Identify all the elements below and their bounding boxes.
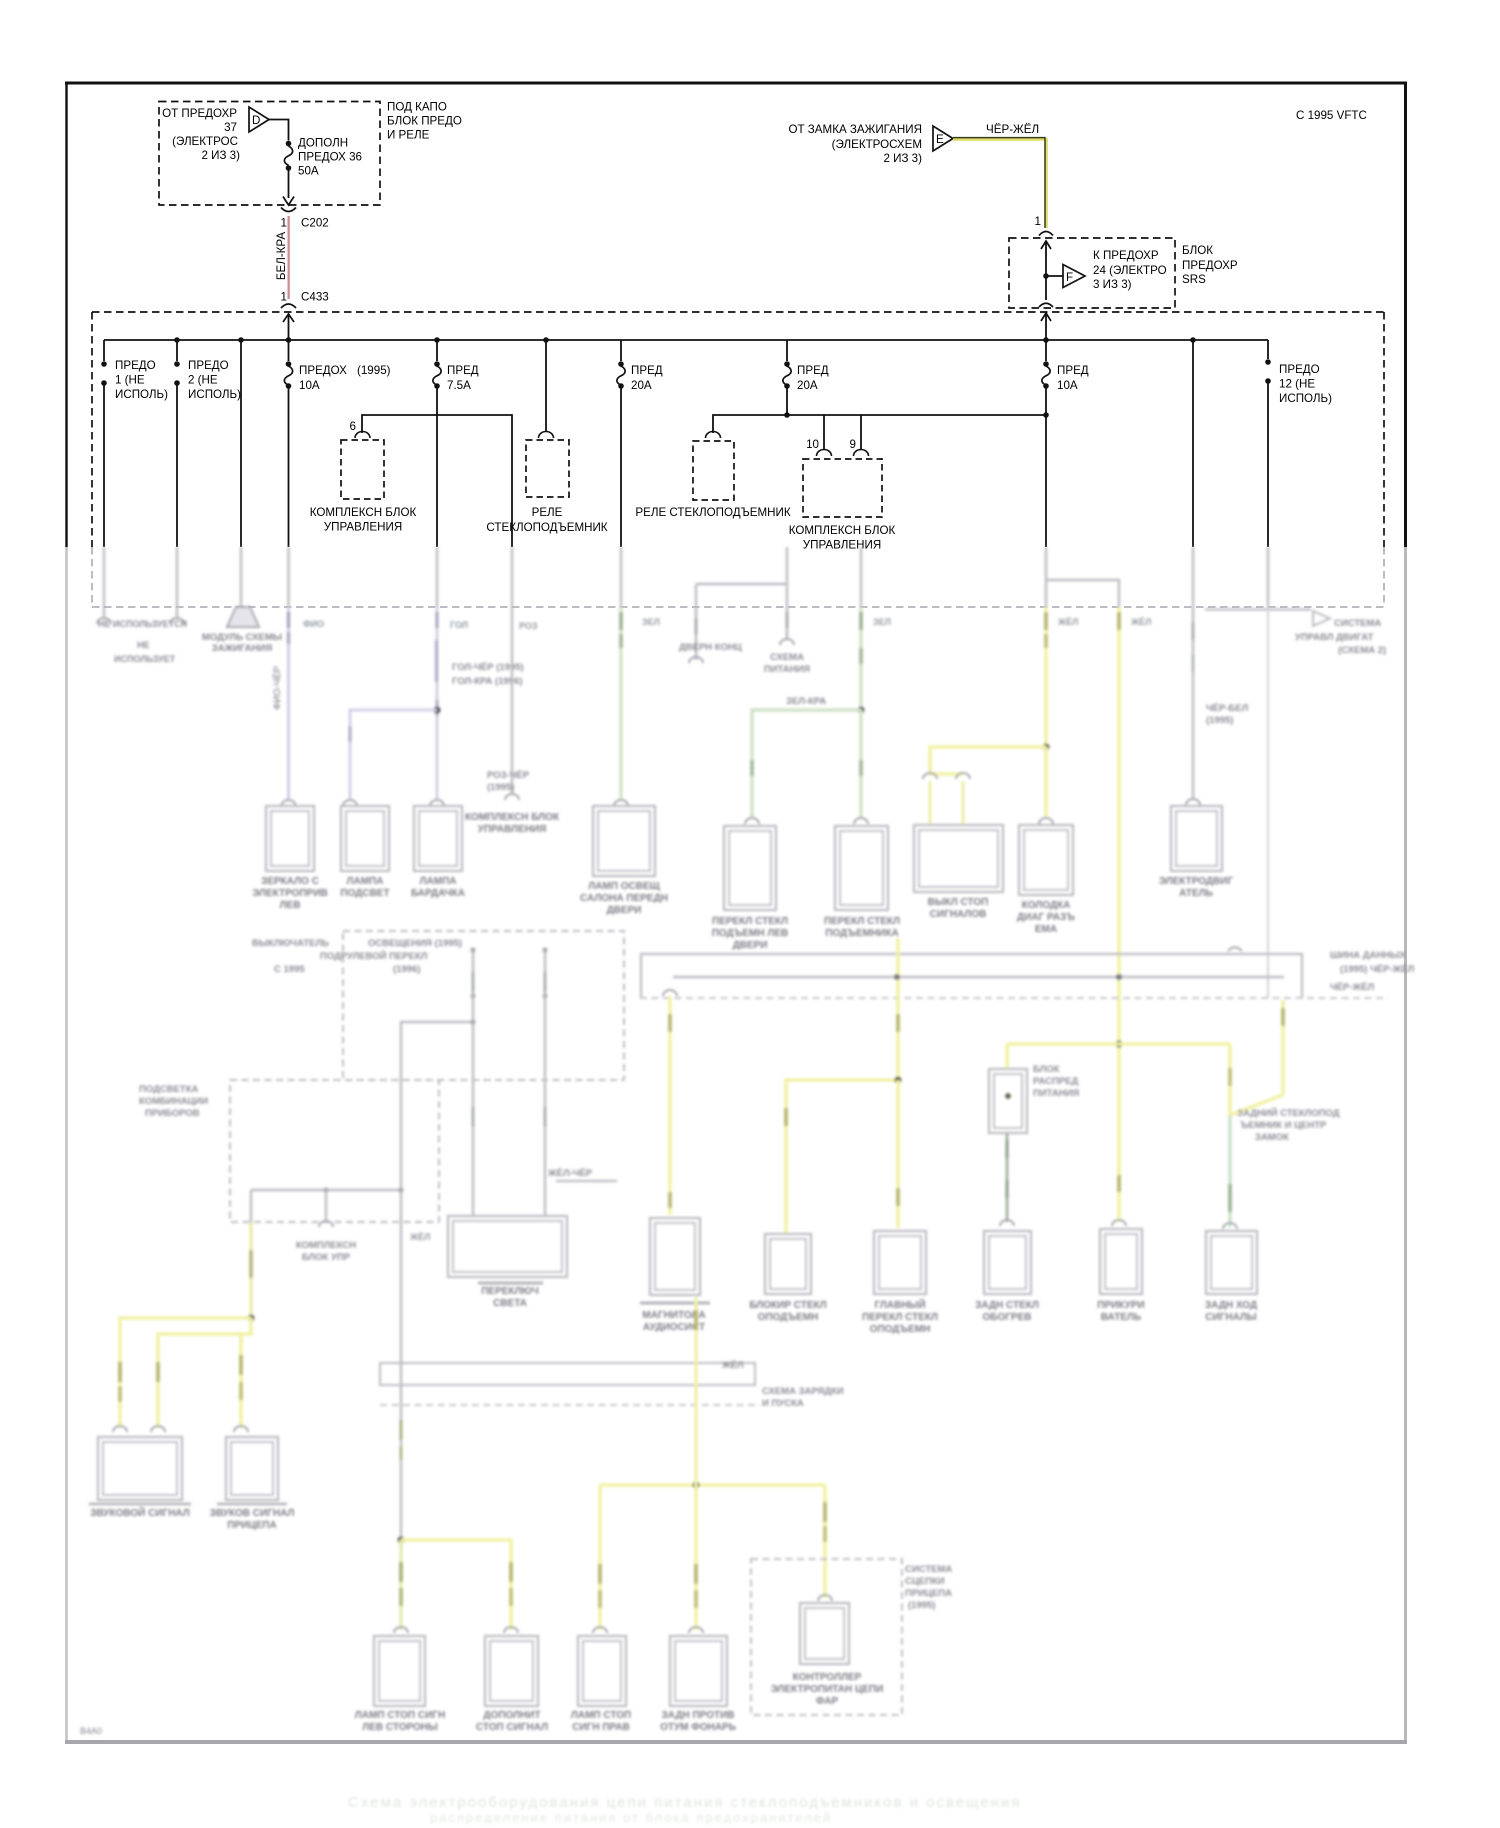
svg-text:3 ИЗ 3): 3 ИЗ 3) xyxy=(1093,278,1132,291)
svg-text:СИСТЕМА: СИСТЕМА xyxy=(1334,618,1381,629)
svg-text:СТОП СИГНАЛ: СТОП СИГНАЛ xyxy=(476,1722,548,1733)
svg-text:СХЕМА: СХЕМА xyxy=(770,652,804,663)
svg-text:УПРАВЛЕНИЯ: УПРАВЛЕНИЯ xyxy=(803,539,881,552)
svg-text:ИСПОЛЬ): ИСПОЛЬ) xyxy=(1279,392,1332,405)
svg-text:1 (НЕ: 1 (НЕ xyxy=(115,374,145,387)
svg-text:КОМПЛЕКСН БЛОК: КОМПЛЕКСН БЛОК xyxy=(310,506,417,519)
svg-text:УПРАВЛ ДВИГАТ: УПРАВЛ ДВИГАТ xyxy=(1295,632,1374,643)
svg-text:ЗЕЛ: ЗЕЛ xyxy=(873,617,891,627)
svg-text:ПРЕДО: ПРЕДО xyxy=(1279,363,1320,376)
svg-text:ОСВЕЩЕНИЯ (1995): ОСВЕЩЕНИЯ (1995) xyxy=(368,938,462,949)
svg-text:12 (НЕ: 12 (НЕ xyxy=(1279,378,1315,391)
svg-text:ЗЕРКАЛО С: ЗЕРКАЛО С xyxy=(261,876,319,887)
svg-text:24 (ЭЛЕКТРО: 24 (ЭЛЕКТРО xyxy=(1093,264,1167,277)
svg-text:10А: 10А xyxy=(299,379,320,392)
svg-text:6: 6 xyxy=(350,420,356,433)
svg-text:СИГНАЛОВ: СИГНАЛОВ xyxy=(930,909,987,920)
svg-text:1: 1 xyxy=(281,217,287,230)
svg-text:ЗВУКОВ СИГНАЛ: ЗВУКОВ СИГНАЛ xyxy=(210,1508,295,1519)
svg-text:E: E xyxy=(936,133,944,146)
svg-text:БЛОКИР СТЕКЛ: БЛОКИР СТЕКЛ xyxy=(749,1300,826,1311)
svg-text:ДВЕРН КОНЦ: ДВЕРН КОНЦ xyxy=(679,642,742,653)
svg-text:1: 1 xyxy=(281,291,287,304)
svg-text:(1995): (1995) xyxy=(1206,715,1233,726)
svg-text:САЛОНА ПЕРЕДН: САЛОНА ПЕРЕДН xyxy=(580,893,668,904)
svg-text:20А: 20А xyxy=(797,379,818,392)
svg-text:МОДУЛЬ СХЕМЫ: МОДУЛЬ СХЕМЫ xyxy=(202,632,282,643)
svg-text:ЗАМОК: ЗАМОК xyxy=(1255,1132,1289,1143)
svg-text:С 1995: С 1995 xyxy=(274,964,305,975)
svg-text:РЕЛЕ СТЕКЛОПОДЪЕМНИК: РЕЛЕ СТЕКЛОПОДЪЕМНИК xyxy=(635,506,790,519)
svg-text:ЗЕЛ-КРА: ЗЕЛ-КРА xyxy=(786,696,826,707)
svg-text:КОМПЛЕКСН БЛОК: КОМПЛЕКСН БЛОК xyxy=(465,812,560,823)
svg-text:ЧЁР-БЕЛ: ЧЁР-БЕЛ xyxy=(1206,703,1249,714)
svg-text:ИСПОЛЬ): ИСПОЛЬ) xyxy=(188,388,241,401)
svg-text:ФАР: ФАР xyxy=(816,1696,839,1707)
svg-text:(1995): (1995) xyxy=(487,782,514,793)
svg-text:50А: 50А xyxy=(298,165,319,178)
svg-text:КОМПЛЕКСН БЛОК: КОМПЛЕКСН БЛОК xyxy=(789,524,896,537)
svg-text:ДИАГ РАЗЪ: ДИАГ РАЗЪ xyxy=(1017,912,1075,923)
svg-text:БЛОК: БЛОК xyxy=(1182,244,1213,257)
svg-text:НЕ: НЕ xyxy=(137,640,150,650)
svg-text:КОМПЛЕКСН: КОМПЛЕКСН xyxy=(296,1240,356,1251)
svg-text:9: 9 xyxy=(850,438,856,451)
svg-text:КОЛОДКА: КОЛОДКА xyxy=(1022,900,1071,911)
svg-text:ЗАДН СТЕКЛ: ЗАДН СТЕКЛ xyxy=(975,1300,1039,1311)
svg-text:ПРЕД: ПРЕД xyxy=(631,364,663,377)
svg-text:КОМБИНАЦИИ: КОМБИНАЦИИ xyxy=(139,1096,208,1107)
svg-text:ВЫКЛ СТОП: ВЫКЛ СТОП xyxy=(928,897,989,908)
svg-text:ПРИКУРИ: ПРИКУРИ xyxy=(1097,1300,1144,1311)
svg-text:ЗАЖИГАНИЯ: ЗАЖИГАНИЯ xyxy=(212,643,273,654)
svg-text:ПЕРЕКЛ СТЕКЛ: ПЕРЕКЛ СТЕКЛ xyxy=(862,1312,938,1323)
svg-text:ГОЛ: ГОЛ xyxy=(450,620,468,630)
svg-text:ДВЕРИ: ДВЕРИ xyxy=(733,940,768,951)
svg-text:ПИТАНИЯ: ПИТАНИЯ xyxy=(1033,1088,1079,1099)
svg-text:2 ИЗ 3): 2 ИЗ 3) xyxy=(883,152,922,165)
svg-text:ПРИЦЕПА: ПРИЦЕПА xyxy=(227,1520,276,1531)
svg-text:ПОД КАПО: ПОД КАПО xyxy=(387,101,447,114)
svg-text:ПРИБОРОВ: ПРИБОРОВ xyxy=(145,1108,200,1119)
svg-text:ЧЁР-ЖЁЛ: ЧЁР-ЖЁЛ xyxy=(986,123,1039,136)
svg-text:распределение питания от блок: распределение питания от блока предохран… xyxy=(430,1810,832,1825)
svg-text:ПОДСВЕТ: ПОДСВЕТ xyxy=(340,888,389,899)
svg-text:РОЗ: РОЗ xyxy=(519,621,538,631)
svg-text:ЖЁЛ: ЖЁЛ xyxy=(721,1360,744,1371)
svg-text:БЛОК: БЛОК xyxy=(1033,1064,1060,1075)
svg-text:C202: C202 xyxy=(301,217,329,230)
svg-text:С 1995 VFTC: С 1995 VFTC xyxy=(1296,109,1367,122)
svg-text:ФИО: ФИО xyxy=(303,619,324,629)
svg-text:(1995): (1995) xyxy=(908,1600,935,1611)
svg-text:ЕМА: ЕМА xyxy=(1035,924,1057,935)
svg-text:ВЫКЛЮЧАТЕЛЬ: ВЫКЛЮЧАТЕЛЬ xyxy=(252,938,329,949)
svg-text:ОБОГРЕВ: ОБОГРЕВ xyxy=(983,1312,1032,1323)
svg-text:ПРЕДОХ 36: ПРЕДОХ 36 xyxy=(298,151,362,164)
svg-text:УПРАВЛЕНИЯ: УПРАВЛЕНИЯ xyxy=(324,521,402,534)
svg-text:И РЕЛЕ: И РЕЛЕ xyxy=(387,129,430,142)
svg-text:ПРЕДО: ПРЕДО xyxy=(188,359,229,372)
svg-text:РЕЛЕ: РЕЛЕ xyxy=(532,506,563,519)
svg-text:К ПРЕДОХР: К ПРЕДОХР xyxy=(1093,249,1159,262)
svg-text:СХЕМА ЗАРЯДКИ: СХЕМА ЗАРЯДКИ xyxy=(762,1386,844,1397)
svg-text:СТЕКЛОПОДЪЕМНИК: СТЕКЛОПОДЪЕМНИК xyxy=(486,521,607,534)
svg-text:ИСПОЛЬ): ИСПОЛЬ) xyxy=(115,388,168,401)
svg-text:ЛЕВ СТОРОНЫ: ЛЕВ СТОРОНЫ xyxy=(362,1722,438,1733)
svg-text:10А: 10А xyxy=(1057,379,1078,392)
svg-text:ДОПОЛН: ДОПОЛН xyxy=(298,137,348,150)
svg-text:(1995): (1995) xyxy=(357,364,391,377)
svg-text:ЗЕЛ: ЗЕЛ xyxy=(642,617,660,627)
svg-text:ЭЛЕКТРОДВИГ: ЭЛЕКТРОДВИГ xyxy=(1159,876,1234,887)
svg-text:ПРЕД: ПРЕД xyxy=(1057,364,1089,377)
svg-text:ПРЕД: ПРЕД xyxy=(447,364,479,377)
svg-text:F: F xyxy=(1066,271,1073,284)
svg-text:ОТ ЗАМКА ЗАЖИГАНИЯ: ОТ ЗАМКА ЗАЖИГАНИЯ xyxy=(788,123,922,136)
svg-text:БЛОК ПРЕДО: БЛОК ПРЕДО xyxy=(387,115,462,128)
svg-text:2 (НЕ: 2 (НЕ xyxy=(188,374,218,387)
svg-text:(ЭЛЕКТРОС: (ЭЛЕКТРОС xyxy=(172,135,238,148)
svg-text:ЗВУКОВОЙ СИГНАЛ: ЗВУКОВОЙ СИГНАЛ xyxy=(90,1506,190,1519)
svg-text:Схема электрооборудования цеп: Схема электрооборудования цепи питания с… xyxy=(348,1794,1021,1811)
svg-text:ПРЕД: ПРЕД xyxy=(797,364,829,377)
svg-text:ЖЁЛ: ЖЁЛ xyxy=(409,1232,430,1242)
svg-text:ДОПОЛНИТ: ДОПОЛНИТ xyxy=(483,1710,540,1721)
svg-text:УПРАВЛЕНИЯ: УПРАВЛЕНИЯ xyxy=(478,824,547,835)
svg-text:(1995) ЧЁР-ЖЁЛ: (1995) ЧЁР-ЖЁЛ xyxy=(1340,964,1415,975)
svg-text:ЛАМПА: ЛАМПА xyxy=(420,876,457,887)
svg-text:ФИО-ЧЁР: ФИО-ЧЁР xyxy=(272,666,283,710)
svg-text:ПРЕДОХ: ПРЕДОХ xyxy=(299,364,347,377)
svg-text:ЭЛЕКТРОПИТАН ЦЕПИ: ЭЛЕКТРОПИТАН ЦЕПИ xyxy=(771,1684,884,1695)
svg-text:ОПОДЪЕМН: ОПОДЪЕМН xyxy=(870,1324,931,1335)
svg-text:СЦЕПКИ: СЦЕПКИ xyxy=(905,1576,945,1587)
svg-text:ЛЕВ: ЛЕВ xyxy=(280,900,301,911)
svg-text:ПЕРЕКЛЮЧ: ПЕРЕКЛЮЧ xyxy=(481,1286,539,1297)
svg-text:ИСПОЛЬЗУЕТ: ИСПОЛЬЗУЕТ xyxy=(114,654,176,664)
svg-text:ПРЕДО: ПРЕДО xyxy=(115,359,156,372)
svg-text:ЖЁЛ: ЖЁЛ xyxy=(1130,617,1151,627)
svg-text:ЛАМП СТОП СИГН: ЛАМП СТОП СИГН xyxy=(355,1710,445,1721)
svg-text:СВЕТА: СВЕТА xyxy=(493,1298,527,1309)
svg-text:ЧЁР-ЖЁЛ: ЧЁР-ЖЁЛ xyxy=(1330,982,1374,993)
svg-text:1: 1 xyxy=(1035,215,1041,228)
svg-text:ПИТАНИЯ: ПИТАНИЯ xyxy=(764,664,810,675)
svg-text:D: D xyxy=(252,114,260,127)
svg-text:АТЕЛЬ: АТЕЛЬ xyxy=(1179,888,1213,899)
svg-text:БЕЛ-КРА: БЕЛ-КРА xyxy=(275,232,288,281)
svg-text:ЛАМП ОСВЕЩ: ЛАМП ОСВЕЩ xyxy=(588,881,660,892)
svg-text:ДВЕРИ: ДВЕРИ xyxy=(607,905,642,916)
svg-text:ЛАМП СТОП: ЛАМП СТОП xyxy=(571,1710,631,1721)
svg-text:БАРДАЧКА: БАРДАЧКА xyxy=(411,888,465,899)
svg-text:И ПУСКА: И ПУСКА xyxy=(762,1398,804,1409)
svg-text:SRS: SRS xyxy=(1182,273,1206,286)
svg-text:ПОДРУЛЕВОЙ ПЕРЕКЛ: ПОДРУЛЕВОЙ ПЕРЕКЛ xyxy=(320,950,428,962)
svg-text:ПЕРЕКЛ СТЕКЛ: ПЕРЕКЛ СТЕКЛ xyxy=(712,916,788,927)
svg-text:7.5А: 7.5А xyxy=(447,379,471,392)
svg-text:РОЗ-ЧЁР: РОЗ-ЧЁР xyxy=(487,770,530,781)
svg-text:НЕ ИСПОЛЬЗУЕТСЯ: НЕ ИСПОЛЬЗУЕТСЯ xyxy=(98,619,187,629)
svg-text:ПОДЪЕМН ЛЕВ: ПОДЪЕМН ЛЕВ xyxy=(712,928,789,939)
svg-text:(1996): (1996) xyxy=(393,964,420,975)
svg-text:37: 37 xyxy=(224,121,237,134)
svg-text:ЗАДН ПРОТИВ: ЗАДН ПРОТИВ xyxy=(661,1710,734,1721)
svg-text:20А: 20А xyxy=(631,379,652,392)
svg-text:СИГНАЛЫ: СИГНАЛЫ xyxy=(1205,1312,1257,1323)
svg-text:ПОДЪЕМНИКА: ПОДЪЕМНИКА xyxy=(825,928,898,939)
svg-text:ЗАДНИЙ СТЕКЛОПОД: ЗАДНИЙ СТЕКЛОПОД xyxy=(1237,1107,1340,1119)
svg-text:ПЕРЕКЛ СТЕКЛ: ПЕРЕКЛ СТЕКЛ xyxy=(824,916,900,927)
svg-text:БЛОК УПР: БЛОК УПР xyxy=(302,1252,351,1263)
svg-text:ПРИЦЕПА: ПРИЦЕПА xyxy=(905,1588,952,1599)
svg-text:ВАТЕЛЬ: ВАТЕЛЬ xyxy=(1101,1312,1141,1323)
svg-text:ЭЛЕКТРОПРИВ: ЭЛЕКТРОПРИВ xyxy=(252,888,327,899)
svg-text:СИГН ПРАВ: СИГН ПРАВ xyxy=(572,1722,630,1733)
svg-text:ЖЁЛ: ЖЁЛ xyxy=(1057,617,1078,627)
svg-text:ОТУМ ФОНАРЬ: ОТУМ ФОНАРЬ xyxy=(660,1722,736,1733)
svg-text:ЛАМПА: ЛАМПА xyxy=(347,876,384,887)
svg-text:ШИНА ДАННЫХ: ШИНА ДАННЫХ xyxy=(1330,950,1406,961)
svg-text:(ЭЛЕКТРОСХЕМ: (ЭЛЕКТРОСХЕМ xyxy=(832,138,922,151)
svg-text:ЖЁЛ-ЧЁР: ЖЁЛ-ЧЁР xyxy=(547,1168,593,1179)
svg-text:ПОДСВЕТКА: ПОДСВЕТКА xyxy=(139,1084,199,1095)
svg-text:РАСПРЕД: РАСПРЕД xyxy=(1033,1076,1078,1087)
svg-text:ОПОДЪЕМН: ОПОДЪЕМН xyxy=(758,1312,819,1323)
svg-text:СИСТЕМА: СИСТЕМА xyxy=(905,1564,952,1575)
svg-text:ЗАДН ХОД: ЗАДН ХОД xyxy=(1205,1300,1257,1311)
svg-text:B4А0: B4А0 xyxy=(80,1726,102,1736)
svg-text:ЪЕМНИК И ЦЕНТР: ЪЕМНИК И ЦЕНТР xyxy=(1240,1120,1327,1131)
svg-text:2 ИЗ 3): 2 ИЗ 3) xyxy=(201,149,240,162)
svg-text:(СХЕМА 2): (СХЕМА 2) xyxy=(1338,645,1386,656)
svg-text:10: 10 xyxy=(806,438,819,451)
svg-text:ПРЕДОХР: ПРЕДОХР xyxy=(1182,259,1238,272)
svg-text:C433: C433 xyxy=(301,291,329,304)
svg-text:ОТ ПРЕДОХР: ОТ ПРЕДОХР xyxy=(162,107,237,120)
svg-text:ГЛАВНЫЙ: ГЛАВНЫЙ xyxy=(874,1298,925,1311)
svg-text:КОНТРОЛЛЕР: КОНТРОЛЛЕР xyxy=(793,1672,862,1683)
